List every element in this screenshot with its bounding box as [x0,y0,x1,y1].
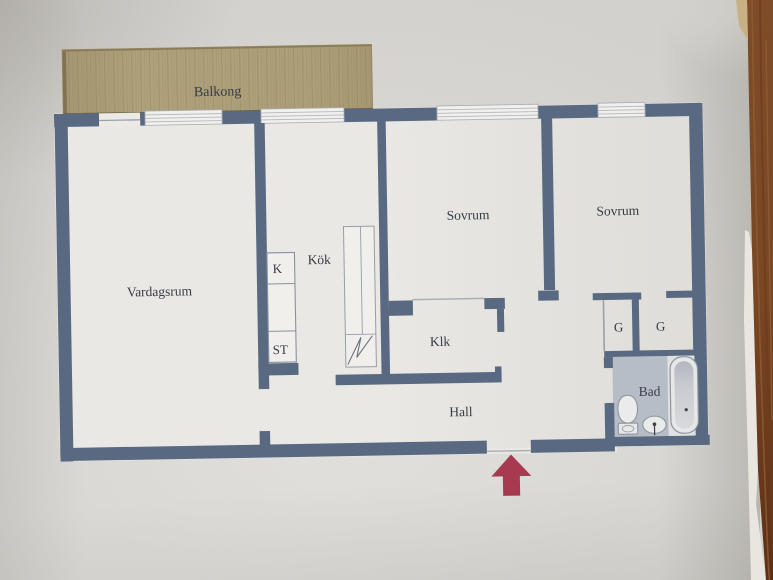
svg-text:Hall: Hall [449,404,473,419]
svg-text:G: G [656,319,666,334]
svg-text:K: K [273,261,283,276]
svg-text:Balkong: Balkong [194,84,242,100]
svg-text:G: G [614,319,624,334]
svg-text:Klk: Klk [430,334,451,349]
svg-text:ST: ST [273,342,288,357]
svg-text:Sovrum: Sovrum [596,203,640,219]
svg-text:Vardagsrum: Vardagsrum [127,283,193,299]
svg-text:Kök: Kök [307,252,331,267]
svg-text:Bad: Bad [639,384,661,399]
svg-text:Sovrum: Sovrum [447,207,491,223]
